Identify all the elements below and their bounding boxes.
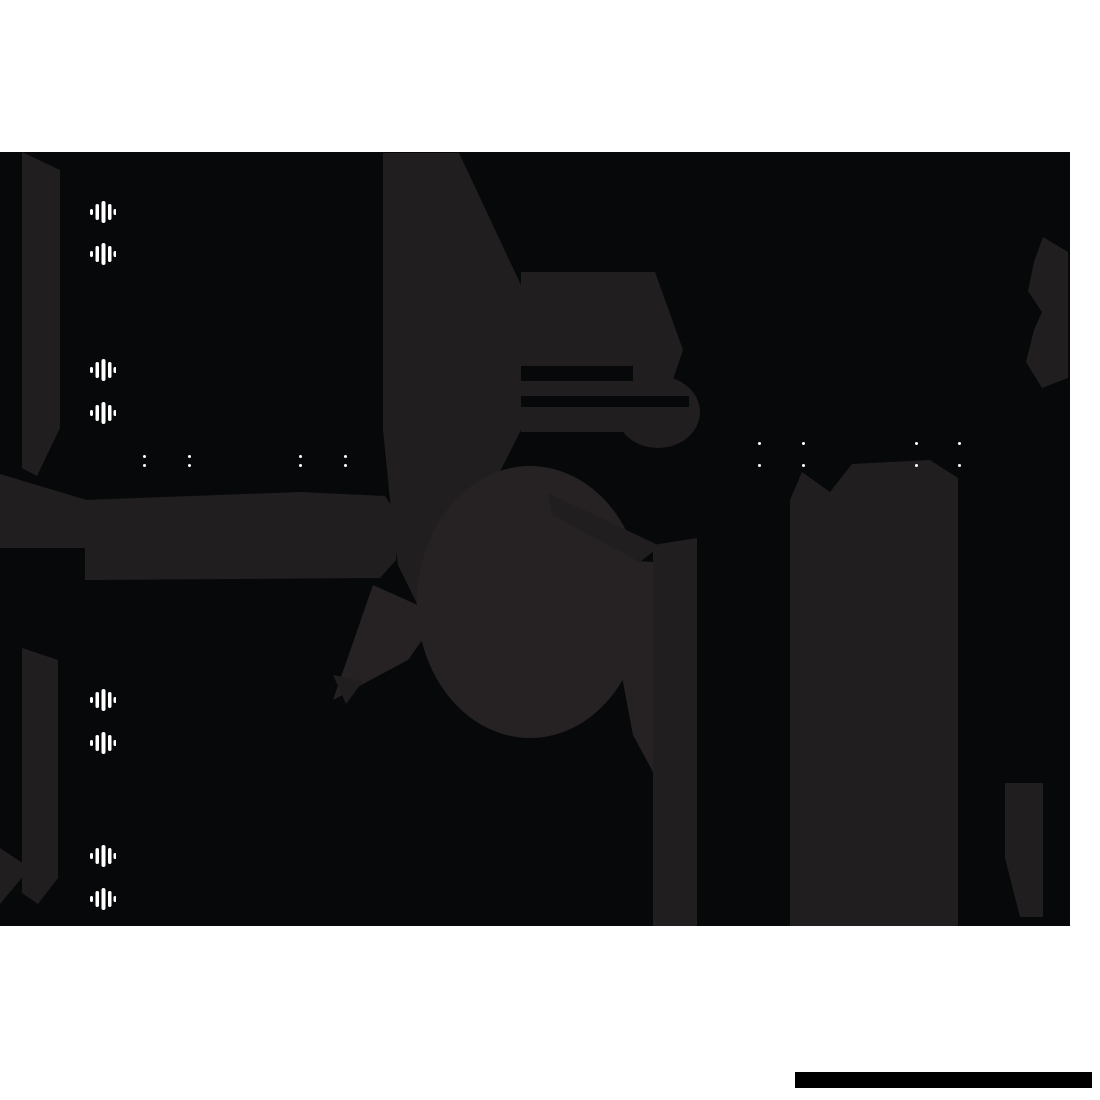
colon-dot xyxy=(958,464,961,467)
colon-separator-large xyxy=(802,442,805,467)
audio-wave-icon[interactable] xyxy=(90,887,116,911)
colon-dot xyxy=(143,455,146,458)
audio-wave-icon[interactable] xyxy=(90,731,116,755)
audio-wave-icon[interactable] xyxy=(90,401,116,425)
colon-separator-small xyxy=(299,455,302,467)
colon-dot xyxy=(915,464,918,467)
colon-dot xyxy=(758,464,761,467)
colon-dot xyxy=(299,464,302,467)
colon-separator-small xyxy=(143,455,146,467)
colon-separator-large xyxy=(958,442,961,467)
colon-dot xyxy=(758,442,761,445)
audio-wave-icon[interactable] xyxy=(90,688,116,712)
footer-bar xyxy=(795,1072,1092,1088)
stage xyxy=(0,152,1070,926)
colon-dot xyxy=(344,455,347,458)
colon-dot xyxy=(143,464,146,467)
page: { "page": { "background": "#ffffff" }, "… xyxy=(0,0,1100,1100)
colon-separator-small xyxy=(344,455,347,467)
colon-separator-large xyxy=(915,442,918,467)
abstract-backdrop xyxy=(0,152,1070,926)
colon-dot xyxy=(344,464,347,467)
audio-wave-icon[interactable] xyxy=(90,200,116,224)
colon-dot xyxy=(958,442,961,445)
colon-dot xyxy=(802,442,805,445)
colon-dot xyxy=(802,464,805,467)
colon-separator-small xyxy=(188,455,191,467)
colon-dot xyxy=(188,455,191,458)
audio-wave-icon[interactable] xyxy=(90,242,116,266)
colon-separator-large xyxy=(758,442,761,467)
colon-dot xyxy=(915,442,918,445)
audio-wave-icon[interactable] xyxy=(90,844,116,868)
audio-wave-icon[interactable] xyxy=(90,358,116,382)
colon-dot xyxy=(299,455,302,458)
colon-dot xyxy=(188,464,191,467)
